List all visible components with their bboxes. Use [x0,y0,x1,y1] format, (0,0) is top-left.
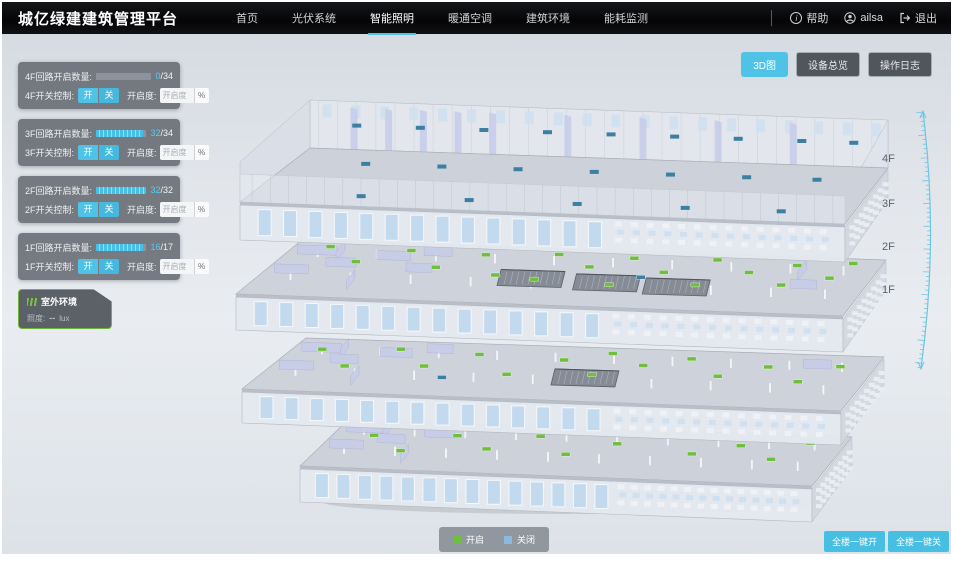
top-nav-bar: 城亿绿建建筑管理平台 首页 光伏系统 智能照明 暖通空调 建筑环境 能耗监测 i… [2,2,951,34]
legend-off-entry: 关闭 [504,533,535,546]
light-marker-on[interactable] [764,365,773,369]
help-icon: i [790,12,802,24]
light-marker-on[interactable] [687,452,696,456]
light-marker-off[interactable] [465,198,474,202]
circuit-progress-bar [96,130,146,137]
switch-off-button[interactable]: 关 [99,202,119,217]
light-marker-off[interactable] [361,162,370,166]
light-marker-off[interactable] [514,167,523,171]
light-marker-off[interactable] [812,178,821,182]
nav-item-energy-monitor[interactable]: 能耗监测 [602,1,650,35]
dimming-label: 开启度: [127,89,157,102]
legend-off-label: 关闭 [517,533,535,546]
outdoor-env-panel: 室外环境 照度: -- lux [18,289,112,329]
circuit-count-value: 16/17 [150,242,173,252]
percent-button[interactable]: % [194,202,209,217]
floor-panel-1f: 1F回路开启数量: 16/17 1F开关控制: 开 关 开启度: % [18,233,180,280]
light-marker-on[interactable] [397,347,406,351]
dimming-label: 开启度: [127,203,157,216]
floor-label-2f[interactable]: 2F [882,241,904,253]
logout-button[interactable]: 退出 [899,10,937,26]
light-marker-on[interactable] [825,276,834,280]
illuminance-unit: lux [59,314,69,323]
circuit-count-value: 0/34 [155,71,173,81]
light-marker-off[interactable] [734,137,743,141]
switch-control-label: 1F开关控制: [25,260,74,273]
legend-on-entry: 开启 [453,533,484,546]
dimming-group: % [160,202,209,217]
legend-on-label: 开启 [466,533,484,546]
circuit-progress-bar [96,187,146,194]
user-icon [844,12,856,24]
legend-off-swatch [504,536,512,544]
light-marker-on[interactable] [793,264,802,268]
logout-icon [899,12,911,24]
circuit-count-value: 32/32 [150,185,173,195]
view-3d-button[interactable]: 3D图 [741,52,788,77]
light-marker-off[interactable] [357,194,366,198]
switch-control-label: 3F开关控制: [25,146,74,159]
dimming-input[interactable] [160,259,194,274]
help-link[interactable]: i 帮助 [790,10,828,26]
light-marker-off[interactable] [437,165,446,169]
floor-model-4f[interactable] [240,100,888,262]
light-marker-on[interactable] [849,261,858,265]
light-marker-on[interactable] [587,373,596,377]
circuit-count-label: 4F回路开启数量: [25,70,92,83]
percent-button[interactable]: % [194,259,209,274]
light-marker-on[interactable] [836,365,845,369]
user-menu[interactable]: ailsa [844,12,883,24]
light-marker-on[interactable] [585,265,594,269]
dimming-input[interactable] [160,88,194,103]
dimming-label: 开启度: [127,146,157,159]
light-marker-on[interactable] [713,374,722,378]
floor-label-3f[interactable]: 3F [882,198,904,210]
light-marker-off[interactable] [666,173,675,177]
switch-on-button[interactable]: 开 [78,259,98,274]
circuit-progress-bar [96,73,151,80]
light-marker-on[interactable] [481,253,490,257]
switch-on-button[interactable]: 开 [78,88,98,103]
dimming-group: % [160,145,209,160]
light-marker-off[interactable] [636,275,645,279]
light-marker-on[interactable] [613,442,622,446]
light-marker-on[interactable] [687,357,696,361]
light-marker-on[interactable] [745,270,754,274]
light-marker-on[interactable] [691,283,700,287]
floor-label-4f[interactable]: 4F [882,153,904,165]
light-status-legend: 开启 关闭 [439,527,549,552]
dimming-input[interactable] [160,145,194,160]
floor-label-1f[interactable]: 1F [882,284,904,296]
light-marker-on[interactable] [793,380,802,384]
outdoor-env-icon [27,298,37,306]
header-divider [771,10,772,26]
light-marker-off[interactable] [777,209,786,213]
circuit-progress-bar [96,244,146,251]
light-marker-off[interactable] [797,139,806,143]
nav-item-smart-lighting[interactable]: 智能照明 [368,1,416,35]
username: ailsa [860,12,883,24]
outdoor-env-title: 室外环境 [41,295,77,308]
light-marker-on[interactable] [536,434,545,438]
circuit-count-label: 3F回路开启数量: [25,127,92,140]
app-title: 城亿绿建建筑管理平台 [18,8,178,29]
light-marker-on[interactable] [491,273,500,277]
light-marker-on[interactable] [326,245,335,249]
light-marker-on[interactable] [605,283,614,287]
all-off-button[interactable]: 全楼一键关 [888,531,949,552]
light-marker-on[interactable] [475,352,484,356]
all-on-button[interactable]: 全楼一键开 [824,531,885,552]
switch-off-button[interactable]: 关 [99,88,119,103]
light-marker-off[interactable] [352,124,361,128]
light-marker-on[interactable] [659,270,668,274]
bulk-controls: 全楼一键开 全楼一键关 [824,531,949,552]
light-marker-on[interactable] [555,252,564,256]
light-marker-on[interactable] [340,364,349,368]
light-marker-on[interactable] [431,265,440,269]
light-marker-on[interactable] [561,452,570,456]
light-marker-on[interactable] [630,256,639,260]
circuit-count-label: 1F回路开启数量: [25,241,92,254]
light-marker-on[interactable] [560,358,569,362]
light-marker-on[interactable] [502,372,511,376]
switch-group: 开 关 [78,202,119,217]
illuminance-label: 照度: [27,313,45,324]
light-marker-on[interactable] [351,260,360,264]
dimming-input[interactable] [160,202,194,217]
light-marker-off[interactable] [742,175,751,179]
dimming-group: % [160,259,209,274]
device-overview-button[interactable]: 设备总览 [796,52,860,77]
view-toolbar: 3D图 设备总览 操作日志 [741,52,932,77]
nav-item-hvac[interactable]: 暖通空调 [446,1,494,35]
light-marker-off[interactable] [437,375,446,379]
floor-scale-ruler [915,111,931,369]
switch-group: 开 关 [78,145,119,160]
main-nav: 首页 光伏系统 智能照明 暖通空调 建筑环境 能耗监测 [234,2,650,34]
switch-group: 开 关 [78,259,119,274]
light-marker-on[interactable] [608,352,617,356]
nav-item-pv-system[interactable]: 光伏系统 [290,1,338,35]
floor-panel-2f: 2F回路开启数量: 32/32 2F开关控制: 开 关 开启度: % [18,176,180,223]
operation-log-button[interactable]: 操作日志 [868,52,932,77]
switch-off-button[interactable]: 关 [99,145,119,160]
legend-on-swatch [453,536,461,544]
light-marker-on[interactable] [318,347,327,351]
light-marker-on[interactable] [530,277,539,281]
light-marker-on[interactable] [453,434,462,438]
switch-on-button[interactable]: 开 [78,145,98,160]
light-marker-off[interactable] [607,132,616,136]
light-marker-on[interactable] [482,447,491,451]
light-marker-on[interactable] [713,258,722,262]
logout-label: 退出 [915,10,937,26]
switch-on-button[interactable]: 开 [78,202,98,217]
dimming-label: 开启度: [127,260,157,273]
switch-control-label: 4F开关控制: [25,89,74,102]
floor-panel-4f: 4F回路开启数量: 0/34 4F开关控制: 开 关 开启度: % [18,62,180,109]
illuminance-value: -- [49,313,55,323]
light-marker-on[interactable] [396,449,405,453]
nav-item-home[interactable]: 首页 [234,1,260,35]
light-marker-off[interactable] [849,141,858,145]
light-marker-off[interactable] [543,130,552,134]
light-marker-on[interactable] [370,433,379,437]
light-marker-on[interactable] [420,364,429,368]
light-marker-off[interactable] [479,128,488,132]
percent-button[interactable]: % [194,88,209,103]
switch-off-button[interactable]: 关 [99,259,119,274]
light-marker-off[interactable] [590,170,599,174]
light-marker-on[interactable] [777,283,786,287]
light-marker-off[interactable] [416,126,425,130]
header-right: i 帮助 ailsa 退出 [771,10,937,26]
switch-group: 开 关 [78,88,119,103]
dimming-group: % [160,88,209,103]
light-marker-off[interactable] [670,135,679,139]
light-marker-off[interactable] [573,202,582,206]
light-marker-on[interactable] [736,444,745,448]
switch-control-label: 2F开关控制: [25,203,74,216]
percent-button[interactable]: % [194,145,209,160]
nav-item-building-env[interactable]: 建筑环境 [524,1,572,35]
light-marker-off[interactable] [681,206,690,210]
circuit-count-value: 32/34 [150,128,173,138]
help-label: 帮助 [806,10,828,26]
light-marker-on[interactable] [767,457,776,461]
app-window: 城亿绿建建筑管理平台 首页 光伏系统 智能照明 暖通空调 建筑环境 能耗监测 i… [0,0,953,564]
light-marker-on[interactable] [639,363,648,367]
floor-panel-3f: 3F回路开启数量: 32/34 3F开关控制: 开 关 开启度: % [18,119,180,166]
circuit-count-label: 2F回路开启数量: [25,184,92,197]
light-marker-on[interactable] [407,249,416,253]
